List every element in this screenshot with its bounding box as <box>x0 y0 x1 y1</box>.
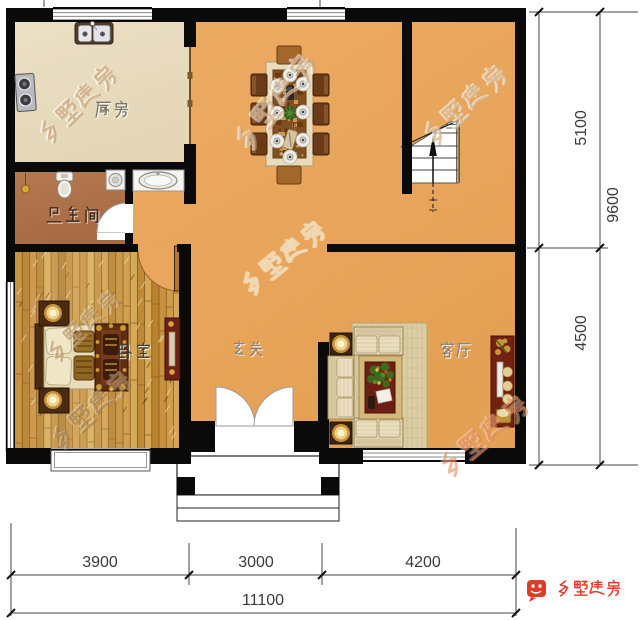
svg-text:9600: 9600 <box>605 187 622 223</box>
svg-text:4200: 4200 <box>405 554 441 571</box>
svg-text:5100: 5100 <box>573 110 590 146</box>
svg-text:4500: 4500 <box>573 315 590 351</box>
svg-text:3900: 3900 <box>82 554 118 571</box>
svg-text:11100: 11100 <box>242 592 284 609</box>
svg-text:3000: 3000 <box>238 554 274 571</box>
